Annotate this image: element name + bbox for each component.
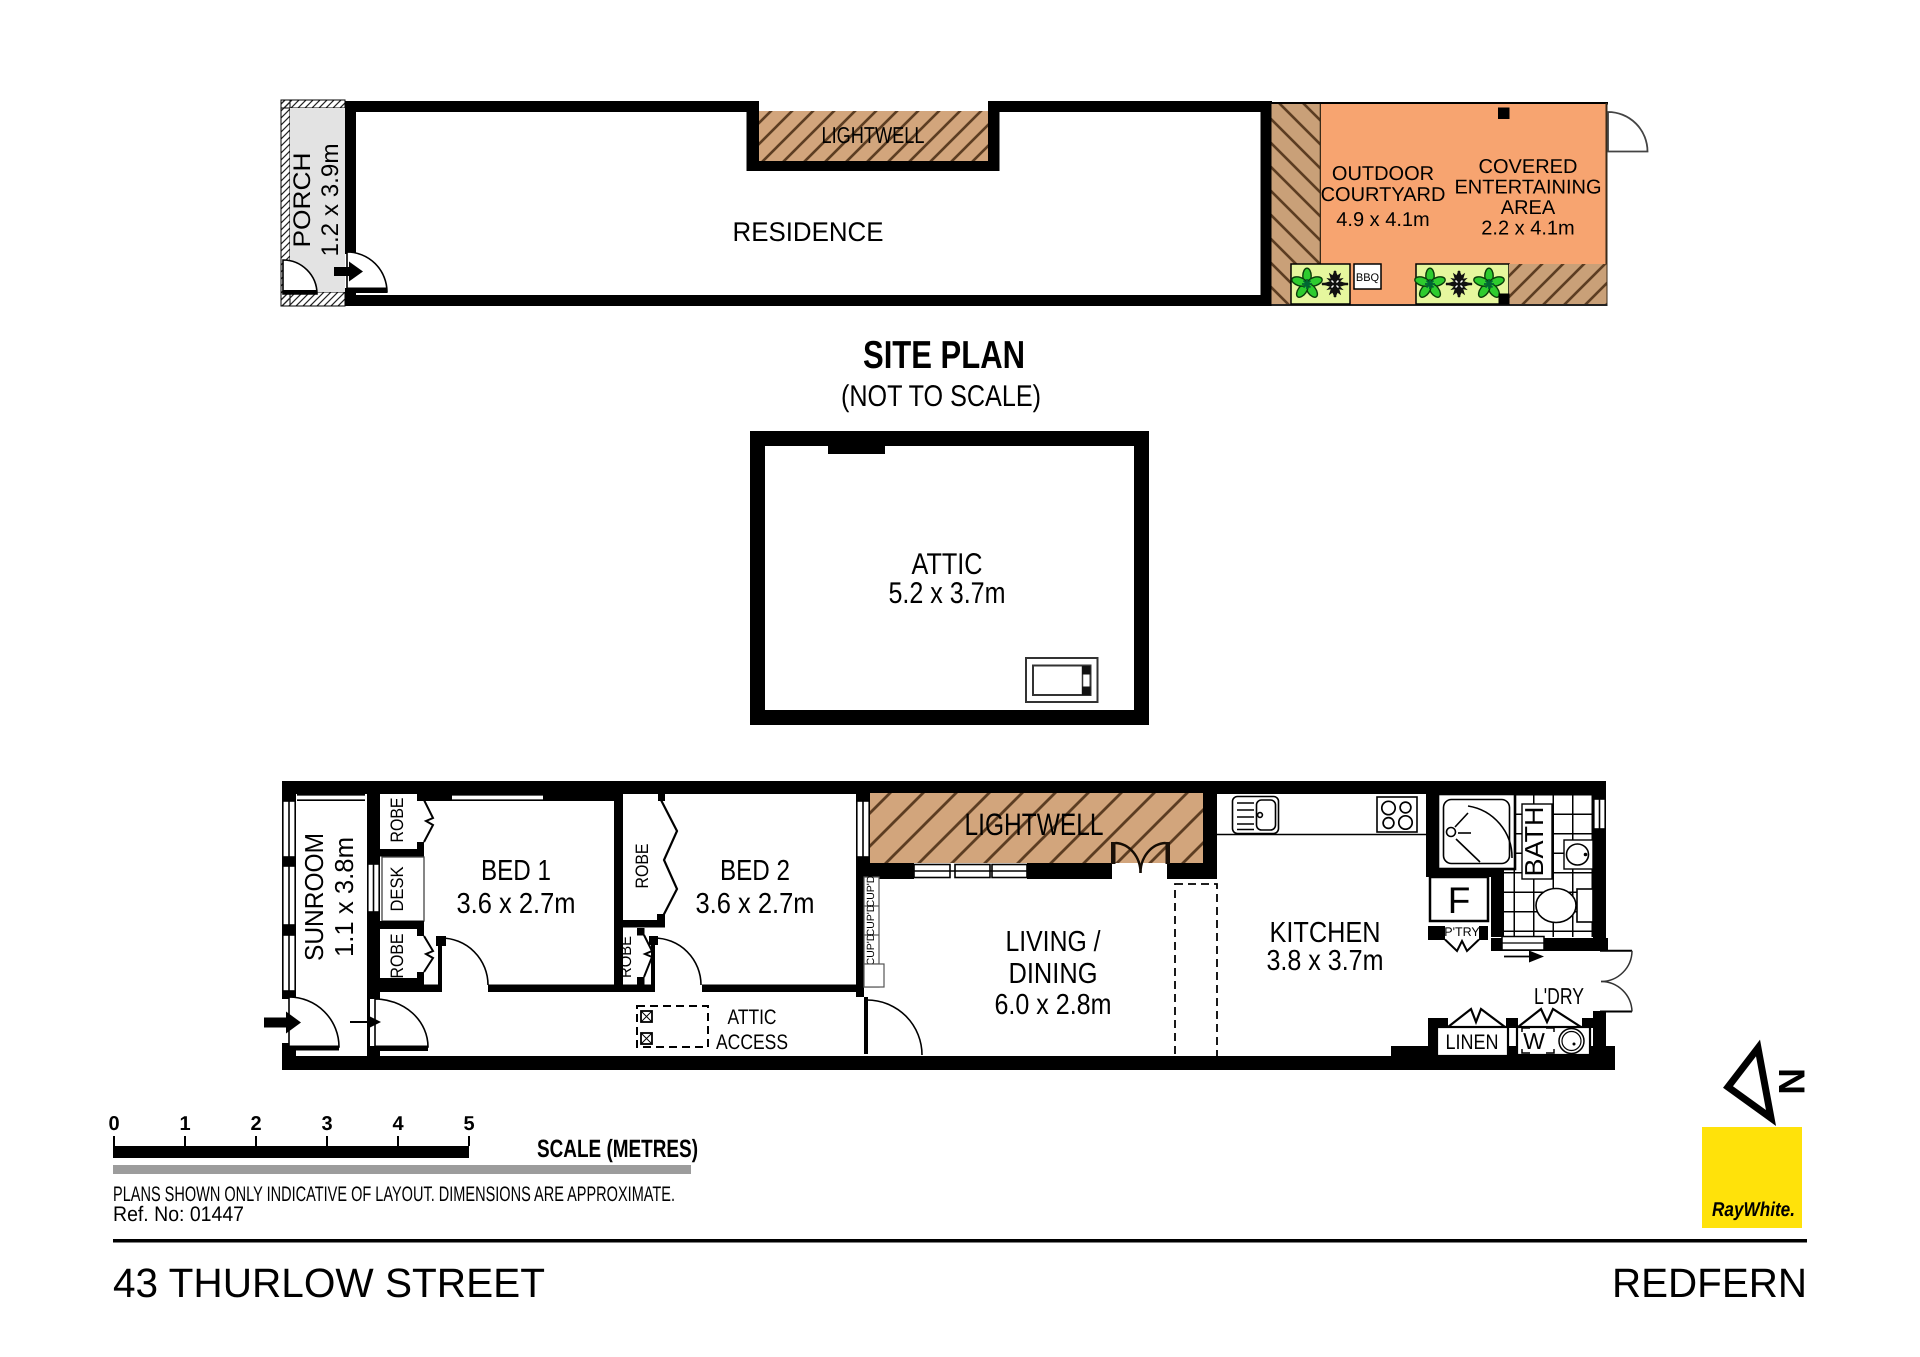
svg-text:SCALE (METRES): SCALE (METRES) (537, 1135, 698, 1163)
svg-text:L'DRY: L'DRY (1534, 983, 1584, 1009)
svg-text:ATTIC: ATTIC (728, 1006, 777, 1029)
svg-text:BATH: BATH (1519, 807, 1549, 877)
svg-text:Ref. No: 01447: Ref. No: 01447 (113, 1203, 244, 1226)
svg-text:5.2 x 3.7m: 5.2 x 3.7m (889, 577, 1006, 610)
svg-text:DESK: DESK (387, 867, 407, 912)
svg-text:2.2 x 4.1m: 2.2 x 4.1m (1481, 218, 1574, 240)
svg-text:ACCESS: ACCESS (716, 1031, 788, 1054)
svg-text:CUP'D: CUP'D (865, 875, 877, 907)
svg-text:LIVING /: LIVING / (1006, 926, 1102, 958)
svg-text:ROBE: ROBE (632, 844, 652, 889)
svg-text:3: 3 (321, 1113, 332, 1135)
svg-text:PORCH: PORCH (289, 153, 316, 248)
svg-text:ROBE: ROBE (387, 798, 407, 843)
svg-text:4.9 x 4.1m: 4.9 x 4.1m (1336, 209, 1429, 231)
svg-text:0: 0 (108, 1113, 119, 1135)
svg-text:CUP'D: CUP'D (865, 904, 877, 936)
svg-text:43 THURLOW STREET: 43 THURLOW STREET (113, 1260, 545, 1306)
svg-text:SITE PLAN: SITE PLAN (863, 334, 1025, 377)
svg-text:4: 4 (392, 1113, 404, 1135)
svg-text:BED 1: BED 1 (481, 855, 551, 887)
svg-text:1: 1 (179, 1113, 190, 1135)
svg-text:OUTDOOR: OUTDOOR (1332, 163, 1434, 185)
svg-text:P'TRY: P'TRY (1444, 925, 1480, 939)
svg-text:SUNROOM: SUNROOM (299, 833, 329, 961)
svg-text:COVERED: COVERED (1479, 156, 1578, 178)
svg-text:RESIDENCE: RESIDENCE (733, 217, 884, 247)
svg-text:3.6 x 2.7m: 3.6 x 2.7m (696, 888, 815, 920)
svg-text:F: F (1448, 880, 1471, 921)
svg-text:LIGHTWELL: LIGHTWELL (965, 807, 1104, 842)
svg-text:1.1 x 3.8m: 1.1 x 3.8m (329, 837, 359, 957)
svg-text:5: 5 (463, 1113, 474, 1135)
svg-text:BED 2: BED 2 (720, 855, 790, 887)
svg-text:CUP'D: CUP'D (865, 933, 877, 965)
svg-text:AREA: AREA (1501, 197, 1556, 219)
svg-text:LINEN: LINEN (1446, 1031, 1499, 1054)
svg-text:RayWhite.: RayWhite. (1712, 1199, 1795, 1221)
svg-text:COURTYARD: COURTYARD (1321, 184, 1446, 206)
svg-text:REDFERN: REDFERN (1612, 1260, 1807, 1306)
svg-text:6.0 x 2.8m: 6.0 x 2.8m (995, 989, 1112, 1021)
svg-text:ROBE: ROBE (387, 934, 407, 979)
svg-text:2: 2 (250, 1113, 261, 1135)
svg-text:LIGHTWELL: LIGHTWELL (822, 122, 925, 148)
svg-text:DINING: DINING (1009, 958, 1098, 990)
svg-text:N: N (1771, 1068, 1812, 1095)
svg-text:1.2 x 3.9m: 1.2 x 3.9m (317, 144, 344, 257)
svg-text:3.8 x 3.7m: 3.8 x 3.7m (1267, 945, 1384, 977)
svg-text:W: W (1523, 1028, 1545, 1054)
svg-text:ENTERTAINING: ENTERTAINING (1454, 177, 1601, 199)
svg-text:ROBE: ROBE (618, 936, 635, 978)
svg-text:(NOT TO SCALE): (NOT TO SCALE) (841, 380, 1041, 413)
svg-text:BBQ: BBQ (1356, 272, 1380, 284)
svg-text:3.6 x 2.7m: 3.6 x 2.7m (457, 888, 576, 920)
